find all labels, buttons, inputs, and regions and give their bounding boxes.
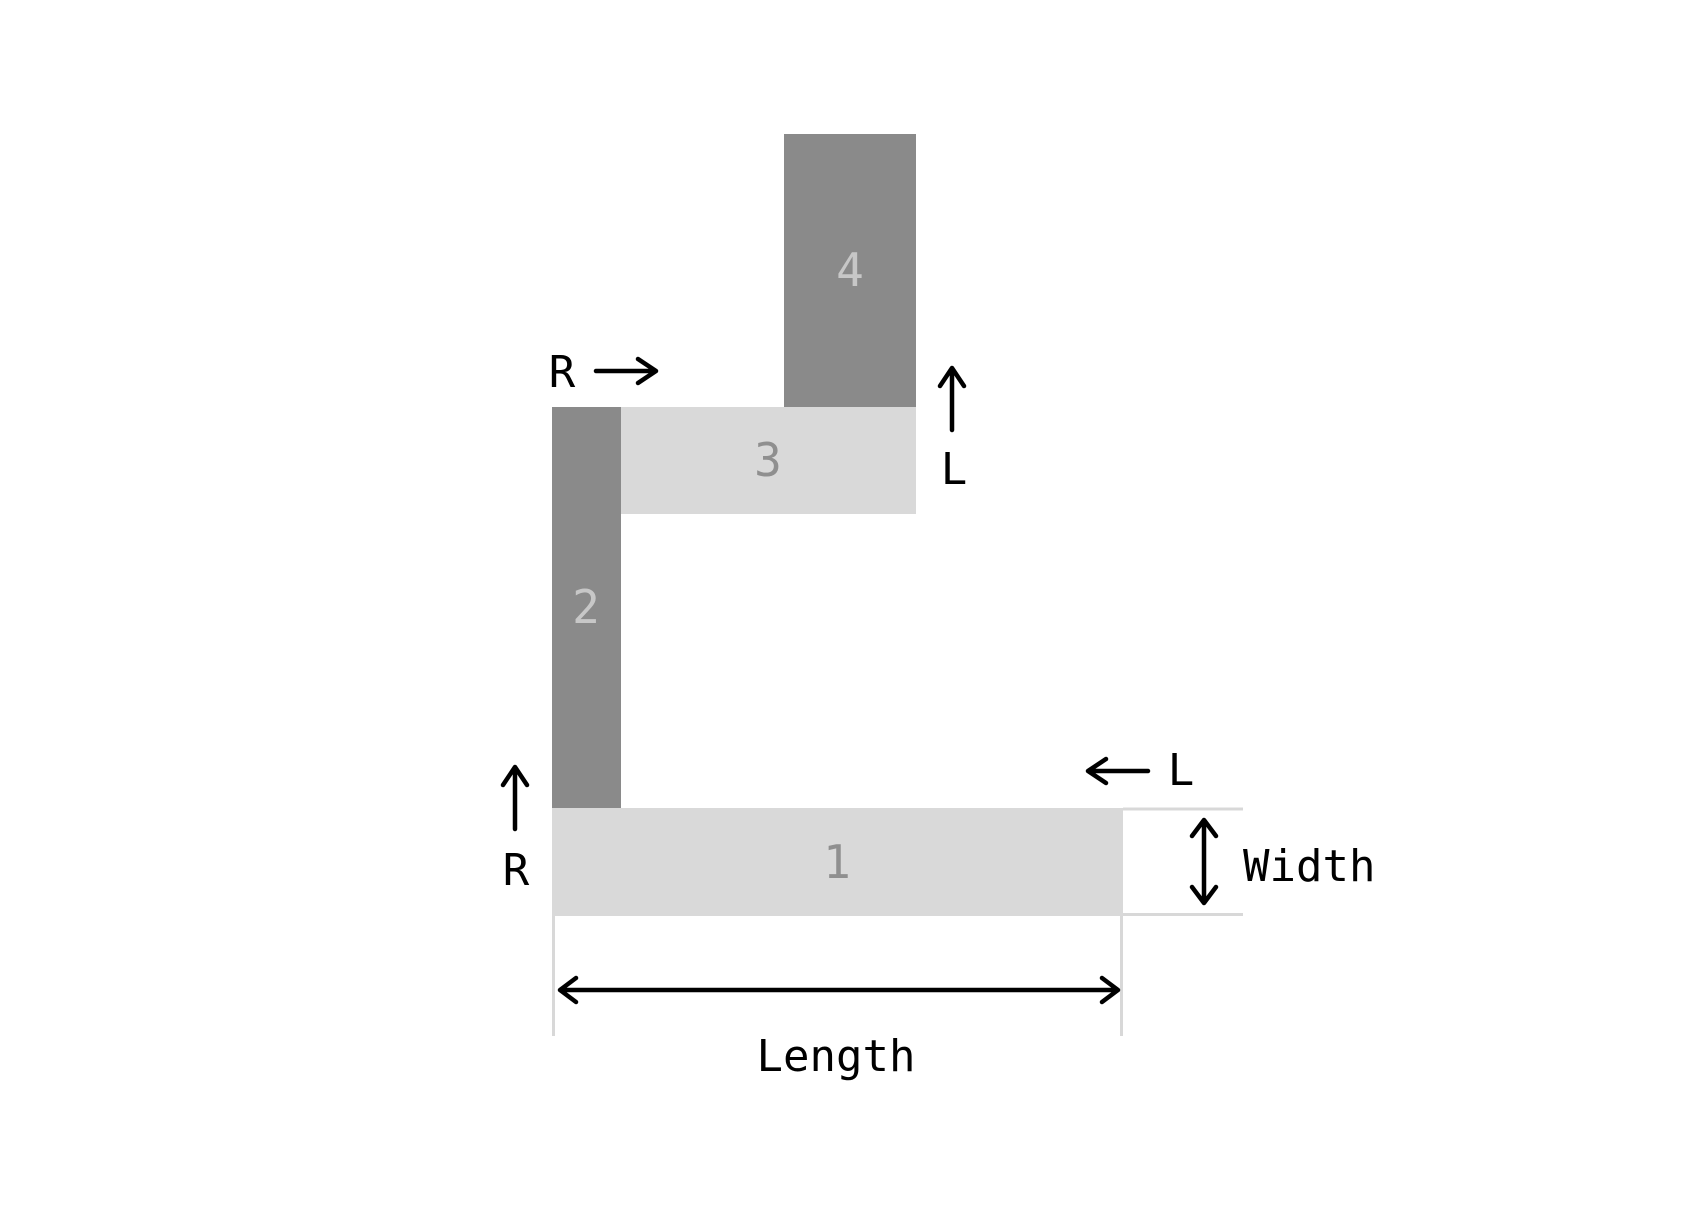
top-l-label: L [941,444,968,495]
top-r-label: R [549,347,576,398]
arrow-right-top-r [596,359,656,383]
length-label: Length [757,1031,916,1082]
piece-4-label: 4 [836,243,864,297]
arrow-up-bottom-r [503,767,527,829]
bottom-r-label: R [503,845,530,896]
piece-3-label: 3 [754,433,782,487]
piece-1-label: 1 [823,835,851,889]
width-dimension-arrow [1192,820,1216,903]
arrow-up-top-l [940,368,964,430]
width-label: Width [1243,841,1375,892]
mid-l-label: L [1168,745,1195,796]
arrow-left-mid-l [1088,759,1148,783]
length-dimension-arrow [560,978,1118,1002]
piece-2-label: 2 [572,580,600,634]
diagram-canvas: 1 2 3 4 R L L R Width Length [0,0,1704,1220]
pieces-diagram: 1 2 3 4 R L L R Width Length [0,0,1704,1220]
